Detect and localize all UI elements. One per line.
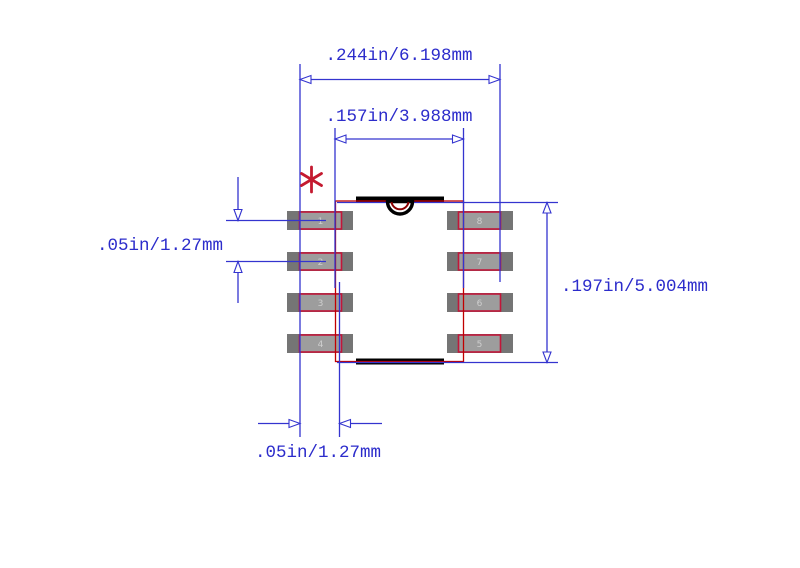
- pin1-marker-asterisk-icon: [302, 167, 322, 192]
- arrowhead-right-icon: [453, 135, 464, 143]
- arrowhead-left-icon: [300, 76, 311, 84]
- dim-height-right: .197in/5.004mm: [337, 203, 708, 363]
- pin-pad-5: 5: [447, 334, 513, 353]
- pin1-notch-icon: [388, 202, 413, 214]
- package-body-outline: [336, 201, 464, 362]
- dim-pitch-left: .05in/1.27mm: [97, 177, 326, 303]
- dimension-label: .197in/5.004mm: [561, 277, 708, 297]
- dim-top-outer: .244in/6.198mm: [300, 46, 500, 437]
- pin-pad-4: 4: [287, 334, 353, 353]
- arrowhead-up-icon: [543, 203, 551, 214]
- pin-pad-8: 8: [447, 211, 513, 230]
- ic-land-pattern-drawing: 1 2 3 4 8 7 6: [0, 0, 800, 568]
- arrowhead-down-icon: [543, 352, 551, 363]
- pin-pad-6: 6: [447, 293, 513, 312]
- pin-number: 6: [477, 299, 483, 309]
- pin-pads: 1 2 3 4 8 7 6: [287, 211, 513, 353]
- dimension-label: .244in/6.198mm: [325, 46, 472, 66]
- dimension-label: .05in/1.27mm: [97, 236, 223, 256]
- pin-number: 5: [477, 340, 483, 350]
- pin-number: 7: [477, 258, 483, 268]
- footprint-drawing-canvas: 1 2 3 4 8 7 6: [0, 0, 800, 568]
- pin-number: 2: [318, 258, 324, 268]
- arrowhead-right-icon: [489, 76, 500, 84]
- arrowhead-right-icon: [289, 420, 300, 428]
- pin-number: 8: [477, 217, 483, 227]
- arrowhead-up-icon: [234, 262, 242, 273]
- dimension-label: .05in/1.27mm: [255, 443, 381, 463]
- pin-number: 3: [318, 299, 324, 309]
- pin-number: 1: [318, 217, 324, 227]
- pin-number: 4: [318, 340, 324, 350]
- arrowhead-left-icon: [335, 135, 346, 143]
- pin-pad-7: 7: [447, 252, 513, 271]
- dimension-label: .157in/3.988mm: [325, 107, 472, 127]
- arrowhead-down-icon: [234, 210, 242, 221]
- arrowhead-left-icon: [340, 420, 351, 428]
- pin-pad-3: 3: [287, 293, 353, 312]
